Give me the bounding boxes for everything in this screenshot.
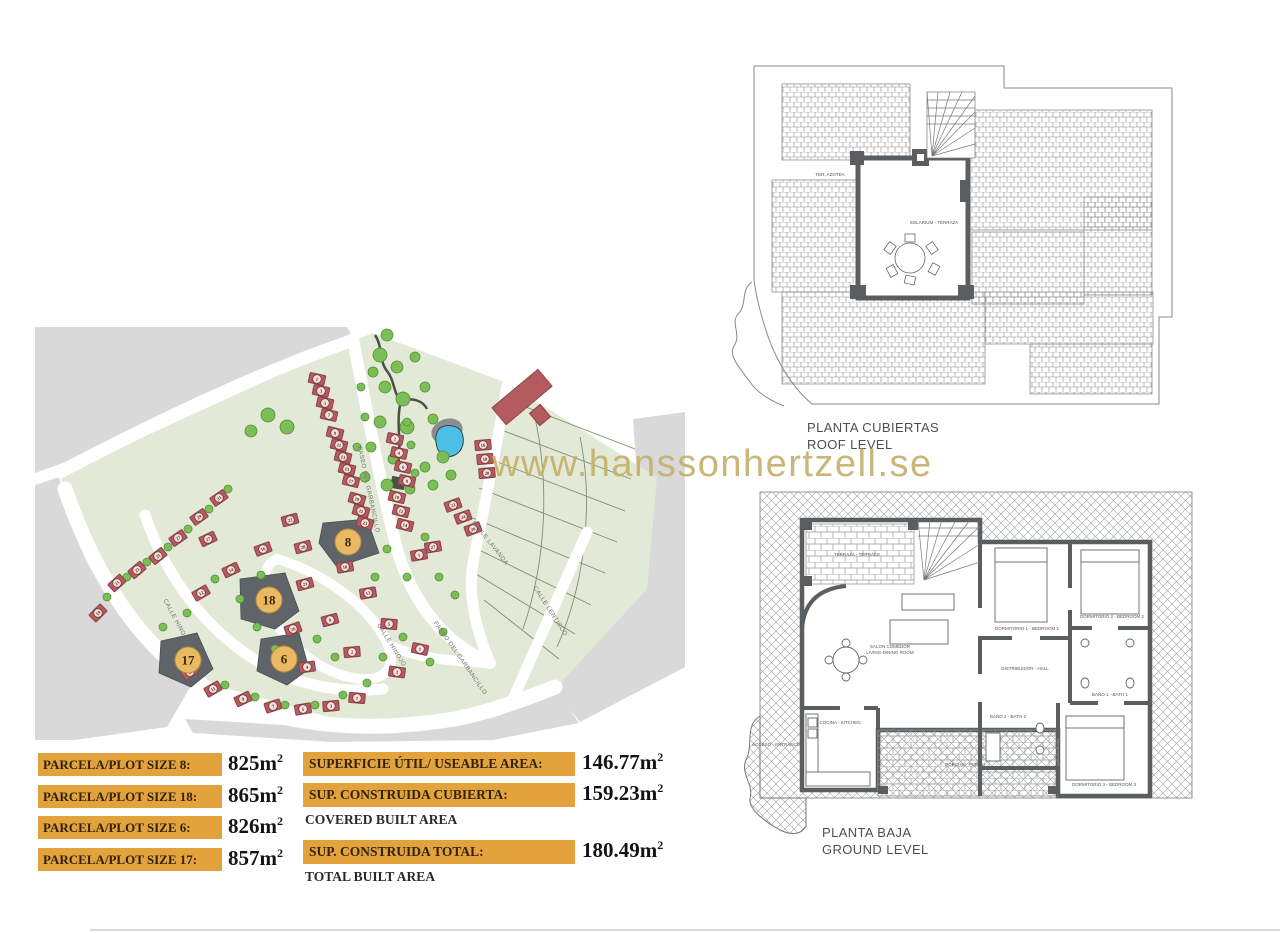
tree-icon [410,352,420,362]
tree-icon [421,533,429,541]
tree-icon [164,543,172,551]
tree-icon [257,571,265,579]
tree-icon [403,573,411,581]
tree-icon [399,633,407,641]
tree-icon [357,383,365,391]
tree-icon [366,442,376,452]
tree-icon [407,441,415,449]
tree-icon [313,635,321,643]
bathtub [986,733,1000,761]
roof-solarium-label: SOLARIUM - TERRAZA [910,220,958,225]
tree-icon [371,573,379,581]
tree-icon [373,348,387,362]
tree-icon [403,418,411,426]
tree-icon [363,679,371,687]
tree-icon [420,382,430,392]
table-row: SUPERFICIE ÚTIL/ USEABLE AREA: 146.77m2 [0,752,700,778]
tree-icon [379,381,391,393]
tree-icon [437,451,449,463]
area-label: SUP. CONSTRUIDA CUBIERTA: [303,783,575,807]
tree-icon [253,623,261,631]
house-marker: 4 [298,661,315,673]
tree-icon [280,420,294,434]
room-label: PORCHE - PORCH [945,762,985,767]
tree-icon [224,485,232,493]
room-label: LIVING-DINING ROOM [866,650,914,655]
site-plan: 1357911131517192123246810121416182022242… [35,327,685,742]
toilet-1 [1081,678,1089,688]
plot-number: 18 [263,593,277,608]
house-marker: 16 [475,439,492,450]
ground-plan-caption: PLANTA BAJA GROUND LEVEL [822,824,929,858]
tree-icon [183,609,191,617]
plot-size-value: 826m2 [228,814,283,839]
room-label: DORMITORIO 2 - BEDROOM 2 [1080,614,1144,619]
tree-icon [245,425,257,437]
area-label: SUPERFICIE ÚTIL/ USEABLE AREA: [303,752,575,776]
sink-1 [1081,639,1089,647]
tree-icon [426,658,434,666]
tree-icon [331,653,339,661]
roof-plan: TER. AZOTEA SOLARIUM - TERRAZA [722,52,1202,432]
sink-2 [1126,639,1134,647]
tree-icon [311,701,319,709]
page-edge-line [90,929,1280,931]
tree-icon [236,595,244,603]
room-label: BAÑO 1 - BATH 1 [1092,691,1128,697]
tree-icon [261,408,275,422]
tree-icon [381,329,393,341]
plot-number: 6 [281,652,288,667]
ground-caption-es: PLANTA BAJA [822,824,929,841]
house-marker: 3 [323,700,340,711]
area-value: 180.49m2 [582,838,663,863]
tree-icon [451,591,459,599]
room-label: DORMITORIO 3 - BEDROOM 3 [1072,782,1136,787]
toilet-3 [1036,723,1044,733]
watermark: www.hanssonhertzell.se [492,443,933,486]
table-row: SUP. CONSTRUIDA TOTAL: 180.49m2 [0,840,700,866]
room-label: BAÑO 2 - BATH 2 [990,713,1026,719]
roof-stairs [927,92,975,158]
plot-number: 8 [345,535,352,550]
tree-icon [211,575,219,583]
plot-size-label: PARCELA/PLOT SIZE 6: [38,816,222,839]
tree-icon [159,623,167,631]
tree-icon [435,573,443,581]
roof-terrace-label: TER. AZOTEA [815,172,844,177]
ground-caption-en: GROUND LEVEL [822,841,929,858]
tree-icon [391,361,403,373]
area-sublabel: COVERED BUILT AREA [305,812,457,828]
area-value: 159.23m2 [582,781,663,806]
tree-icon [184,525,192,533]
tree-icon [374,416,386,428]
sink-3 [1036,746,1044,754]
tree-icon [205,505,213,513]
room-label: SALON COMEDOR [870,644,911,649]
tree-icon [103,593,111,601]
pillar-core [917,154,924,161]
area-value: 146.77m2 [582,750,663,775]
kitchen-counter-2 [806,772,870,786]
room-label: TERRAZA - TERRACE [834,552,880,557]
plot-number: 17 [182,653,196,668]
tree-icon [381,479,393,491]
room-label: DISTRIBUIDOR - HALL [1001,666,1049,671]
area-label: SUP. CONSTRUIDA TOTAL: [303,840,575,864]
tree-icon [428,480,438,490]
room-label: ACCESO - ENTRANCE [752,742,800,747]
tree-icon [420,462,430,472]
ground-plan: TERRAZA - TERRACESALON COMEDORLIVING-DIN… [740,478,1210,868]
tree-icon [221,681,229,689]
house-marker: 13 [359,587,376,600]
house-marker: 1 [349,692,366,703]
house-marker: 1 [410,549,427,562]
brochure-page: { "watermark": "www.hanssonhertzell.se",… [0,0,1280,933]
tree-icon [411,469,419,477]
tree-icon [361,413,369,421]
table-row: SUP. CONSTRUIDA CUBIERTA: 159.23m2 [0,783,700,809]
house-marker: 18 [477,453,494,464]
house-marker: 5 [294,703,311,716]
roof-caption-es: PLANTA CUBIERTAS [807,419,939,436]
tree-icon [446,470,456,480]
tree-icon [428,414,438,424]
dining-table [833,647,859,673]
tree-icon [379,653,387,661]
house-marker: 10 [336,561,353,574]
tree-icon [396,392,410,406]
house-marker: 3 [388,666,405,678]
room-label: DORMITORIO 1 - BEDROOM 1 [995,626,1059,631]
tree-icon [368,367,378,377]
sofa-2 [890,620,948,644]
tree-icon [339,691,347,699]
tree-icon [383,545,391,553]
room-label: COCINA - KITCHEN [819,720,860,725]
sofa [902,594,954,610]
toilet-2 [1126,678,1134,688]
area-sublabel: TOTAL BUILT AREA [305,869,435,885]
house-marker: 2 [344,646,361,657]
